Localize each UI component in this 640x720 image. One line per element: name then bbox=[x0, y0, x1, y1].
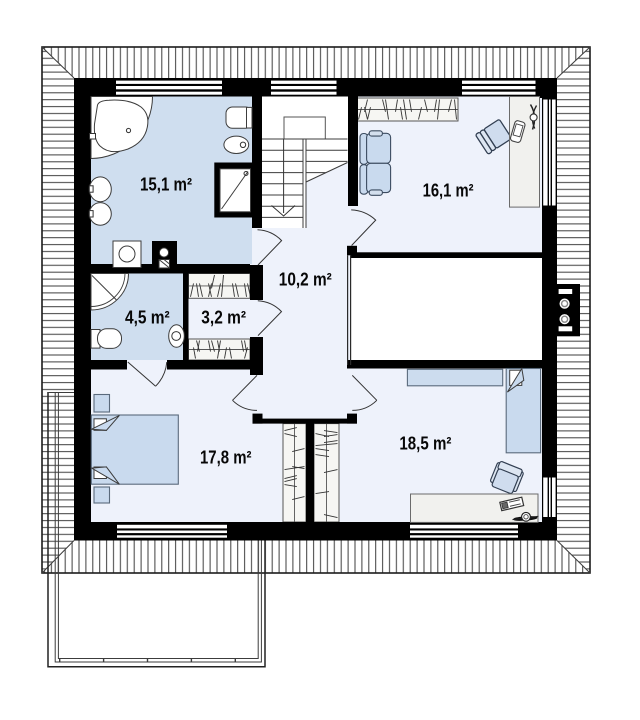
svg-text:3,2 m²: 3,2 m² bbox=[201, 307, 246, 327]
svg-text:15,1 m²: 15,1 m² bbox=[140, 175, 192, 195]
svg-text:4,5 m²: 4,5 m² bbox=[125, 307, 170, 327]
svg-text:18,5 m²: 18,5 m² bbox=[399, 433, 451, 453]
svg-text:17,8 m²: 17,8 m² bbox=[200, 447, 252, 467]
svg-text:16,1 m²: 16,1 m² bbox=[423, 180, 474, 200]
svg-text:10,2 m²: 10,2 m² bbox=[279, 269, 332, 289]
